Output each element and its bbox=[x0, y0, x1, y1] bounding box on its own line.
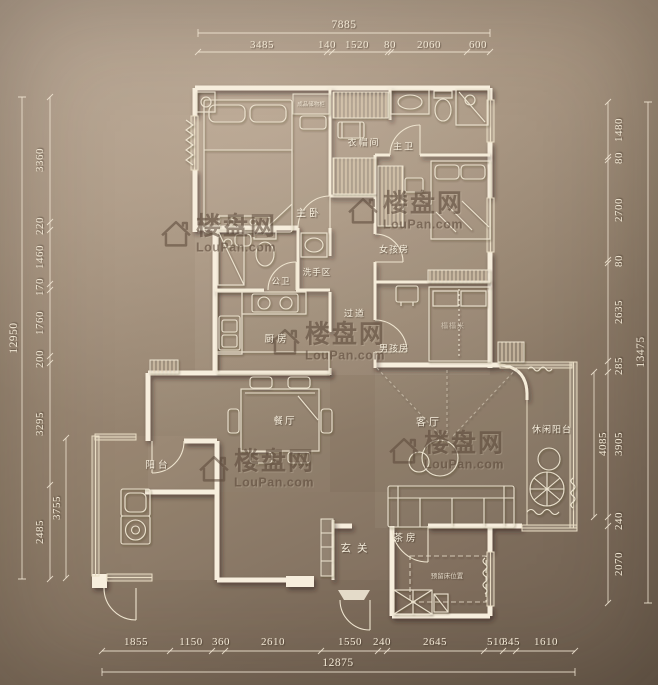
dim-bottom-seg: 1550 bbox=[338, 636, 362, 648]
room-label-guest-bath: 公卫 bbox=[271, 275, 290, 287]
label-storage-cabinet: 成品储物柜 bbox=[297, 100, 325, 108]
room-label-corridor: 过道 bbox=[344, 307, 366, 320]
room-label-living: 客厅 bbox=[416, 414, 442, 429]
dim-top-seg: 600 bbox=[469, 39, 487, 51]
room-label-tea-room: 茶房 bbox=[393, 530, 418, 544]
dim-bottom-seg: 1855 bbox=[124, 636, 148, 648]
dim-left-seg: 1460 bbox=[34, 245, 46, 269]
door-balcony-bottom bbox=[104, 588, 136, 620]
room-label-kitchen: 厨房 bbox=[264, 331, 289, 345]
dim-right-seg: 2700 bbox=[613, 198, 625, 222]
dim-right-total: 13475 bbox=[635, 336, 647, 367]
dim-right-seg: 2070 bbox=[613, 552, 625, 576]
room-label-cloakroom: 衣帽间 bbox=[347, 136, 380, 149]
dim-bottom-seg: 360 bbox=[212, 636, 230, 648]
dim-right-seg: 285 bbox=[613, 357, 625, 375]
window-balcony-top bbox=[95, 434, 136, 440]
room-label-dining: 餐厅 bbox=[273, 413, 296, 427]
dim-left-seg: 3295 bbox=[34, 412, 46, 436]
girlroom-wardrobe bbox=[378, 166, 403, 226]
dim-right-seg: 80 bbox=[613, 152, 625, 164]
dim-bottom-seg: 240 bbox=[373, 636, 391, 648]
boyroom-wardrobe bbox=[428, 270, 490, 282]
cloakroom-wardrobe-top bbox=[333, 92, 388, 118]
dim-top-seg: 1520 bbox=[345, 39, 369, 51]
room-label-girl-room: 女孩房 bbox=[379, 243, 409, 256]
window-balcony-left bbox=[92, 436, 99, 576]
dim-bottom-seg: 1150 bbox=[179, 636, 203, 648]
room-label-leisure-balcony: 休闲阳台 bbox=[532, 423, 572, 436]
dim-left-seg: 3360 bbox=[34, 148, 46, 172]
dim-top-seg: 80 bbox=[384, 39, 396, 51]
dim-top-seg: 3485 bbox=[250, 39, 274, 51]
window-leisure-right bbox=[570, 362, 577, 528]
dim-bottom-total: 12875 bbox=[322, 657, 353, 669]
dim-right-seg: 240 bbox=[613, 512, 625, 530]
dim-bottom-seg: 345 bbox=[502, 636, 520, 648]
dim-right-seg: 80 bbox=[613, 255, 625, 267]
room-label-tatami: 榻榻米 bbox=[441, 321, 465, 331]
dim-bottom-seg: 2610 bbox=[261, 636, 285, 648]
dim-left-seg: 220 bbox=[34, 217, 46, 235]
window-leisure-bottom bbox=[522, 525, 577, 531]
dim-right-seg: 2635 bbox=[613, 300, 625, 324]
dim-top-seg: 2060 bbox=[417, 39, 441, 51]
dim-top-total: 7885 bbox=[332, 19, 357, 31]
door-entry bbox=[338, 590, 370, 630]
leisure-cabinet bbox=[498, 342, 524, 362]
dim-bottom-seg: 2645 bbox=[423, 636, 447, 648]
rattan-chair bbox=[530, 472, 564, 506]
dim-left-total: 12950 bbox=[8, 322, 20, 353]
dim-right-seg: 3905 bbox=[613, 432, 625, 456]
dim-bottom-seg: 1610 bbox=[534, 636, 558, 648]
dining-side-cabinet bbox=[150, 360, 178, 373]
room-label-foyer: 玄关 bbox=[341, 541, 374, 556]
window-tearoom-right bbox=[487, 552, 494, 606]
cloakroom-wardrobe-bottom bbox=[333, 158, 376, 194]
dim-left-seg: 2485 bbox=[34, 520, 46, 544]
dim-left-seg: 200 bbox=[34, 350, 46, 368]
room-label-master-bath: 主卫 bbox=[393, 140, 415, 153]
label-reserved-bed: 预留床位置 bbox=[431, 570, 464, 580]
window-leisure-top bbox=[500, 362, 572, 368]
dim-right-inner: 4085 bbox=[597, 432, 609, 456]
dim-left-inner: 3755 bbox=[51, 496, 63, 520]
floorplan-drawing bbox=[0, 0, 658, 685]
room-label-wash-area: 洗手区 bbox=[303, 266, 332, 278]
dim-left-seg: 1760 bbox=[34, 311, 46, 335]
dim-left-seg: 170 bbox=[34, 278, 46, 296]
window-balcony-bottom bbox=[107, 574, 152, 581]
room-label-boy-room: 男孩房 bbox=[379, 342, 409, 355]
room-label-master-bedroom: 主卧 bbox=[296, 205, 322, 220]
room-label-balcony: 阳台 bbox=[145, 457, 170, 471]
floorplan-canvas: 楼盘网LouPan.com 楼盘网LouPan.com 楼盘网LouPan.co… bbox=[0, 0, 658, 685]
dim-right-seg: 1480 bbox=[613, 118, 625, 142]
dim-top-seg: 140 bbox=[318, 39, 336, 51]
